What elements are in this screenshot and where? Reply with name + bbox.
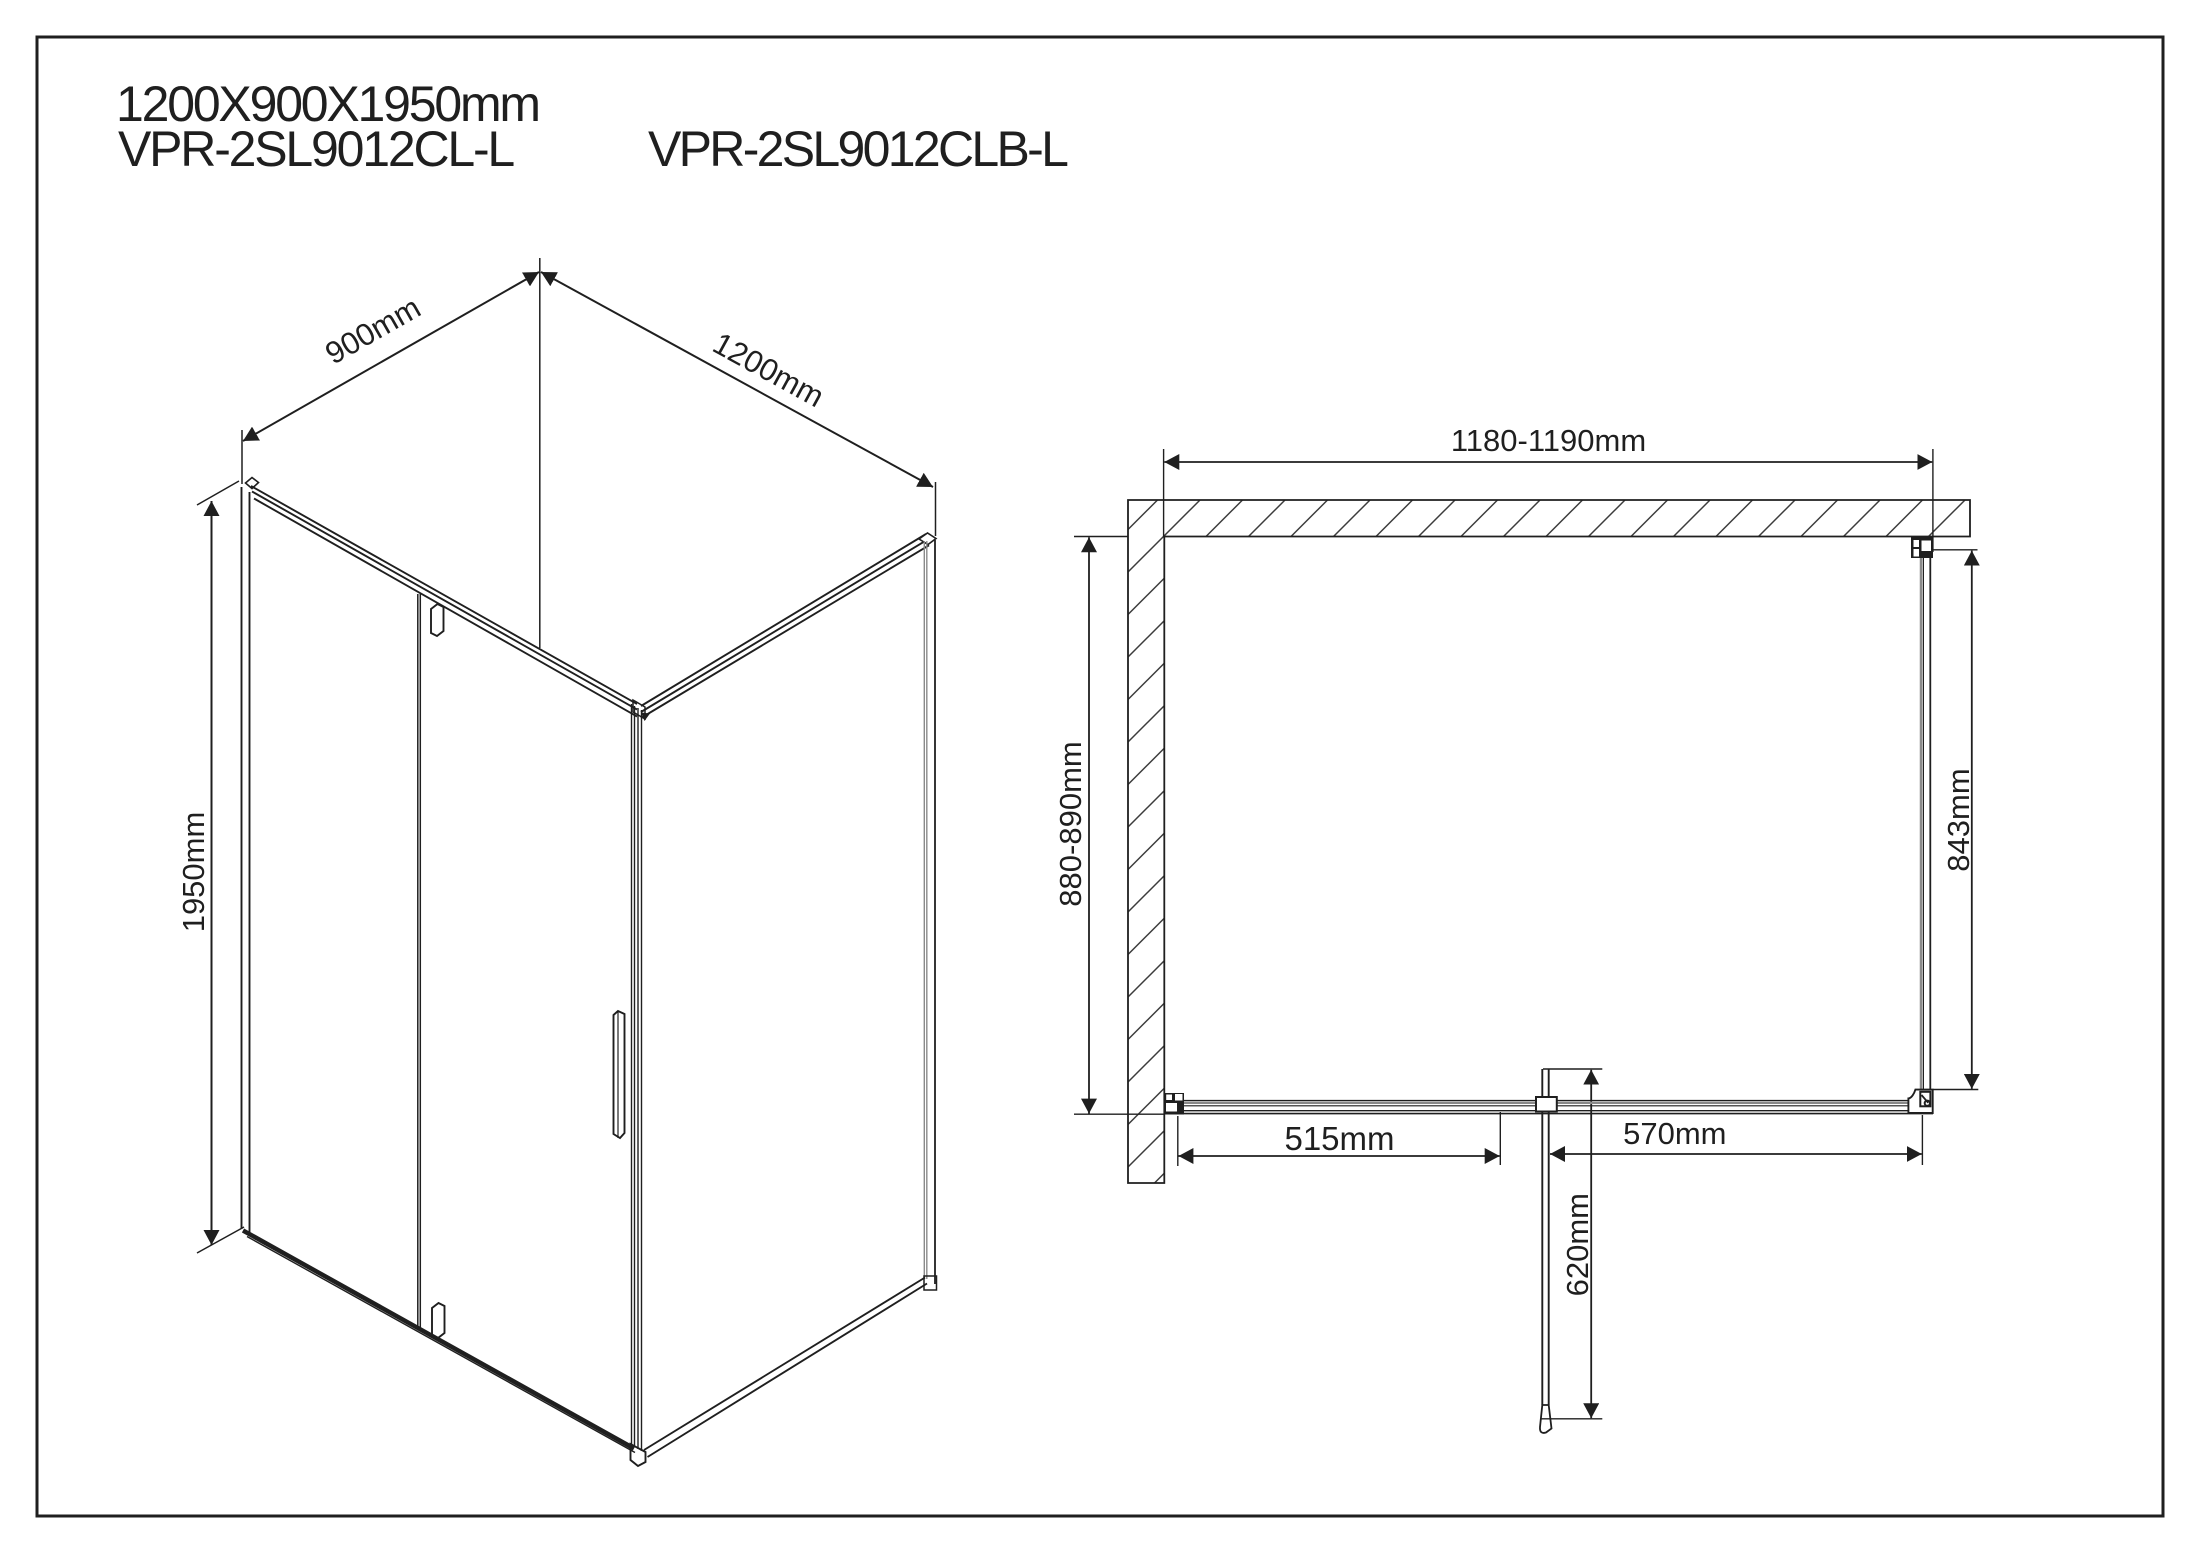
- svg-text:1950mm: 1950mm: [176, 812, 211, 933]
- svg-text:880-890mm: 880-890mm: [1053, 741, 1088, 906]
- svg-text:570mm: 570mm: [1623, 1116, 1726, 1151]
- svg-text:620mm: 620mm: [1560, 1193, 1595, 1296]
- svg-text:VPR-2SL9012CL-L: VPR-2SL9012CL-L: [118, 121, 514, 177]
- svg-text:VPR-2SL9012CLB-L: VPR-2SL9012CLB-L: [648, 121, 1068, 177]
- svg-text:1180-1190mm: 1180-1190mm: [1451, 423, 1646, 458]
- svg-text:515mm: 515mm: [1284, 1120, 1394, 1157]
- svg-text:843mm: 843mm: [1941, 768, 1976, 871]
